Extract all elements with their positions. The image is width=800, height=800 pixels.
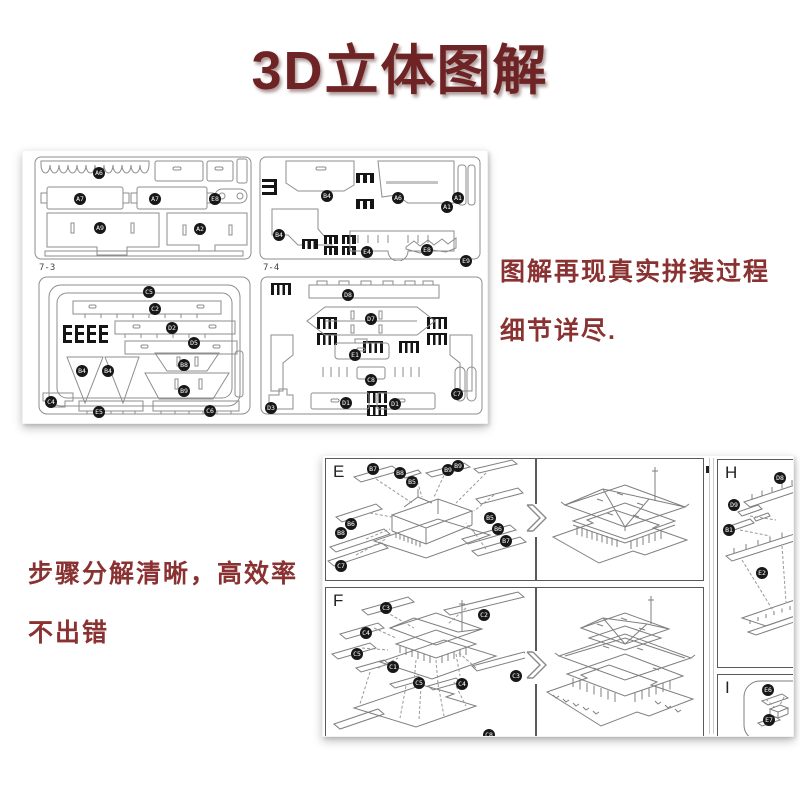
piece-label: C5	[143, 286, 155, 298]
sheet-panel-4: D8D7E1C8D1D1D3C7	[259, 275, 484, 416]
piece-label: E5	[93, 406, 105, 418]
piece-label: C5	[351, 648, 363, 660]
piece-label: E6	[762, 684, 774, 696]
piece-label: E2	[756, 567, 768, 579]
caption-left: 步骤分解清晰，高效率 不出错	[28, 554, 328, 672]
sheet-panel-1: A6A7A7E8A9A2	[33, 151, 253, 261]
piece-label: B7	[367, 463, 379, 475]
sheet-panel-2: B4A6A1A1B4E4E8E9	[258, 151, 483, 261]
page-divider	[709, 458, 710, 734]
piece-label: E8	[421, 244, 433, 256]
sheets-photo: A6A7A7E8A9A2	[22, 150, 488, 424]
piece-label: B6	[345, 518, 357, 530]
panel-h-letter: H	[725, 463, 737, 483]
piece-label: E8	[209, 193, 221, 205]
piece-label: E9	[460, 255, 472, 267]
piece-label: E7	[763, 714, 775, 726]
piece-label: D1	[340, 397, 352, 409]
piece-label: B4	[76, 365, 88, 377]
piece-label: D8	[774, 472, 786, 484]
piece-label: C8	[365, 374, 377, 386]
panel-e: E	[325, 458, 536, 581]
caption-left-line-2: 不出错	[28, 613, 328, 649]
piece-label: D1	[389, 398, 401, 410]
panel-e-letter: E	[333, 462, 344, 482]
piece-label: B5	[406, 476, 418, 488]
piece-label: C7	[335, 560, 347, 572]
caption-right-line-1: 图解再现真实拼装过程	[500, 252, 800, 288]
panel-e-result	[536, 458, 704, 581]
piece-label: C6	[204, 405, 216, 417]
piece-label: B4	[321, 190, 333, 202]
piece-label: B9	[452, 460, 464, 472]
piece-label: A7	[149, 193, 161, 205]
piece-label: A1	[441, 201, 453, 213]
assembled-model-f-drawing	[537, 588, 703, 737]
caption-right: 图解再现真实拼装过程 细节详尽.	[500, 252, 800, 370]
panel-f-letter: F	[333, 591, 343, 611]
piece-label: E4	[361, 246, 373, 258]
piece-label: C4	[456, 678, 468, 690]
sheet-id-7-4: 7-4	[263, 263, 279, 273]
piece-label: D9	[728, 499, 740, 511]
piece-label: B6	[492, 523, 504, 535]
piece-label: A6	[93, 167, 105, 179]
page-title: 3D立体图解	[0, 26, 800, 105]
assembled-model-e-drawing	[537, 459, 703, 578]
piece-label: D5	[188, 337, 200, 349]
exploded-view-f-drawing	[326, 588, 533, 737]
piece-label: E1	[349, 349, 361, 361]
piece-label: B8	[335, 527, 347, 539]
page: 3D立体图解 A6A7A7E8A9A2	[0, 0, 800, 800]
chevron-right-icon	[525, 504, 547, 537]
assembly-photo: E	[322, 455, 794, 737]
piece-label: C4	[360, 627, 372, 639]
piece-label: B9	[178, 385, 190, 397]
piece-label: C2	[478, 609, 490, 621]
piece-label: D3	[265, 402, 277, 414]
piece-label: A7	[74, 193, 86, 205]
sheet-panel-3: C5C2D2D5B4B4B8B9C4E5C6	[37, 275, 252, 416]
piece-label: A1	[452, 192, 464, 204]
piece-label: D8	[342, 289, 354, 301]
piece-label: A9	[94, 222, 106, 234]
piece-label: B7	[500, 535, 512, 547]
panel-i-letter: I	[725, 678, 730, 698]
piece-label: C3	[510, 670, 522, 682]
piece-label: C4	[45, 396, 57, 408]
piece-label: C5	[413, 677, 425, 689]
piece-label: B4	[273, 229, 285, 241]
panel-f-result	[536, 587, 704, 737]
sheet-id-7-3: 7-3	[39, 263, 55, 273]
panel-i: I E6E7	[717, 674, 794, 737]
piece-label: C1	[387, 661, 399, 673]
piece-label: B8	[178, 359, 190, 371]
piece-label: C2	[149, 303, 161, 315]
caption-left-line-1: 步骤分解清晰，高效率	[28, 554, 328, 590]
caption-right-line-2: 细节详尽.	[500, 311, 800, 347]
piece-label: C3	[380, 602, 392, 614]
chevron-right-icon	[525, 651, 547, 684]
piece-label: B5	[484, 512, 496, 524]
page-divider	[713, 458, 714, 734]
piece-label: B8	[394, 467, 406, 479]
piece-label: A6	[392, 192, 404, 204]
piece-label: B1	[723, 524, 735, 536]
piece-label: C8	[483, 729, 495, 737]
piece-label: A2	[194, 223, 206, 235]
page-divider-mark	[706, 466, 709, 473]
piece-label: D7	[365, 313, 377, 325]
piece-label: B4	[102, 365, 114, 377]
panel-h: H D8D9B1E2	[717, 459, 794, 668]
exploded-view-e-drawing	[326, 459, 533, 578]
sheet-1-drawing	[33, 151, 253, 261]
panel-f: F	[325, 587, 536, 737]
exploded-view-h-drawing	[718, 460, 794, 667]
piece-label: D2	[166, 322, 178, 334]
piece-label: C7	[451, 388, 463, 400]
